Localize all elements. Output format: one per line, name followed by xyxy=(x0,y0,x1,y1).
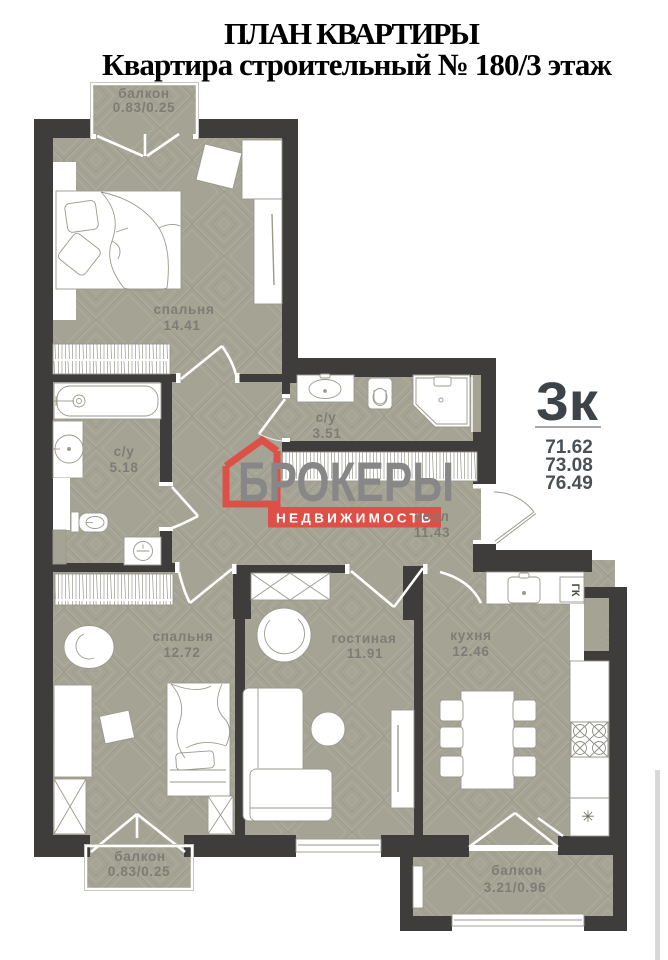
svg-text:спальня: спальня xyxy=(154,302,215,317)
svg-text:кухня: кухня xyxy=(450,628,491,643)
svg-text:11.43: 11.43 xyxy=(414,525,451,540)
svg-text:БРОКЕРЫ: БРОКЕРЫ xyxy=(238,450,454,513)
svg-text:гостиная: гостиная xyxy=(331,631,396,646)
svg-text:0.83/0.25: 0.83/0.25 xyxy=(108,864,171,879)
svg-text:спальня: спальня xyxy=(153,629,214,644)
svg-text:3.21/0.96: 3.21/0.96 xyxy=(484,880,547,895)
svg-text:0.83/0.25: 0.83/0.25 xyxy=(113,100,176,115)
svg-text:11.91: 11.91 xyxy=(347,646,384,661)
svg-text:76.49: 76.49 xyxy=(545,473,593,494)
svg-text:балкон: балкон xyxy=(491,863,543,878)
svg-text:12.72: 12.72 xyxy=(163,645,200,660)
svg-text:балкон: балкон xyxy=(114,849,166,864)
svg-text:НЕДВИЖИМОСТЬ: НЕДВИЖИМОСТЬ xyxy=(276,512,434,526)
svg-text:3.51: 3.51 xyxy=(312,426,341,441)
svg-text:ПЛАН КВАРТИРЫ: ПЛАН КВАРТИРЫ xyxy=(224,16,480,51)
svg-text:балкон: балкон xyxy=(118,86,170,101)
svg-text:12.46: 12.46 xyxy=(452,644,489,659)
svg-text:14.41: 14.41 xyxy=(163,318,200,333)
svg-text:5.18: 5.18 xyxy=(109,460,138,475)
svg-text:с/у: с/у xyxy=(316,410,337,425)
svg-text:✳: ✳ xyxy=(581,809,594,826)
svg-text:с/у: с/у xyxy=(114,444,135,459)
svg-text:Квартира строительный № 180/3: Квартира строительный № 180/3 этаж xyxy=(102,47,613,82)
svg-text:3к: 3к xyxy=(536,372,599,432)
svg-text:ГК: ГК xyxy=(569,584,581,597)
svg-text:холл: холл xyxy=(414,509,449,524)
